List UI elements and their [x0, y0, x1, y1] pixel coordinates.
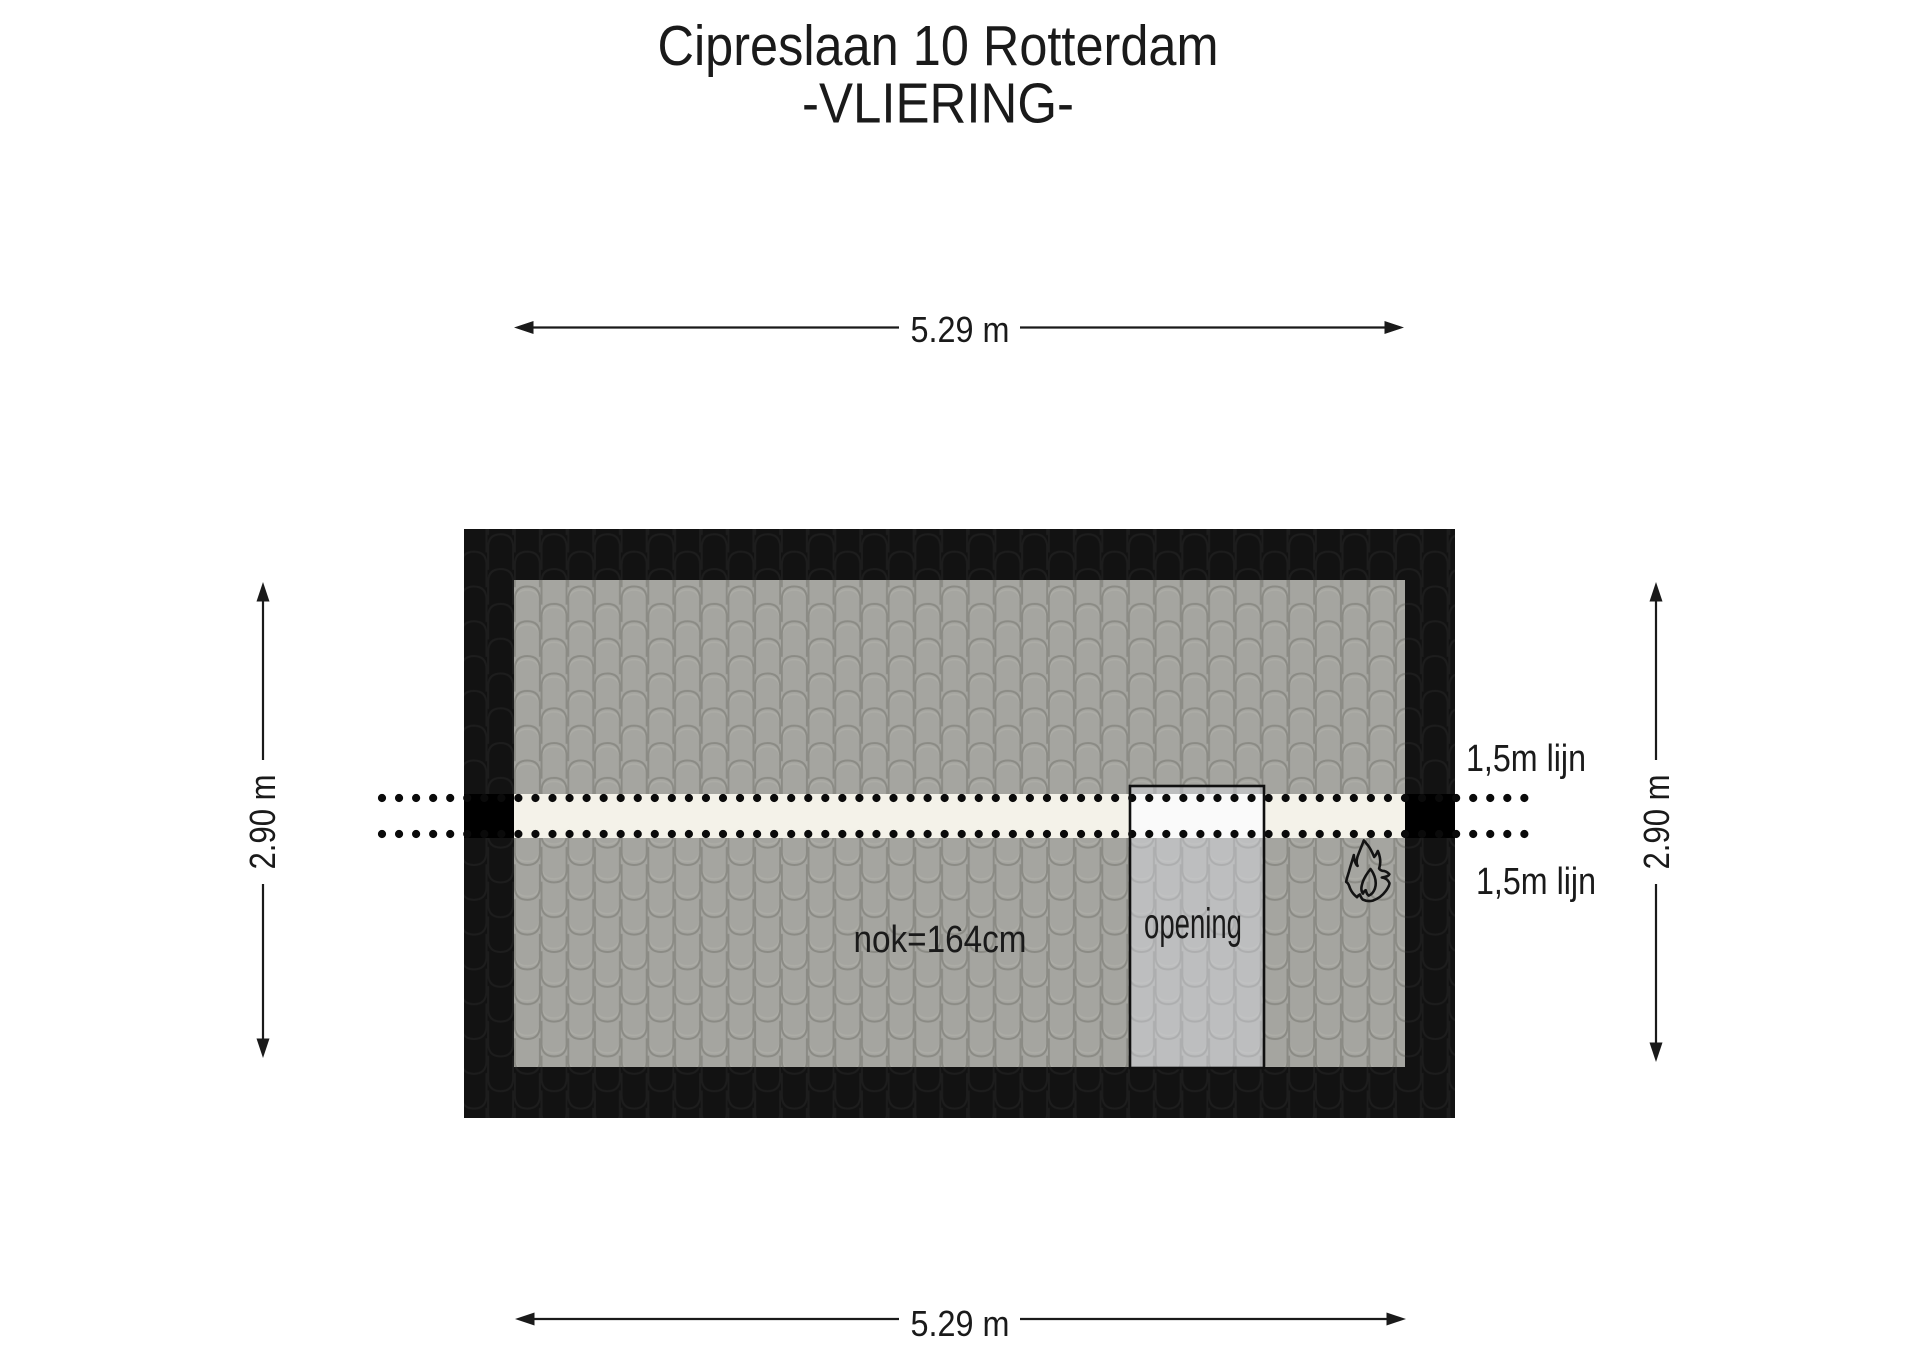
svg-text:5.29 m: 5.29 m: [911, 309, 1010, 350]
svg-text:opening: opening: [1144, 900, 1242, 948]
svg-text:1,5m lijn: 1,5m lijn: [1476, 861, 1596, 903]
svg-text:-VLIERING-: -VLIERING-: [802, 72, 1074, 136]
svg-text:Cipreslaan 10 Rotterdam: Cipreslaan 10 Rotterdam: [658, 14, 1219, 78]
svg-text:1,5m lijn: 1,5m lijn: [1466, 738, 1586, 780]
svg-text:nok=164cm: nok=164cm: [854, 919, 1027, 961]
svg-text:2.90 m: 2.90 m: [242, 775, 283, 870]
svg-text:5.29 m: 5.29 m: [911, 1303, 1010, 1344]
svg-text:2.90 m: 2.90 m: [1636, 775, 1677, 870]
